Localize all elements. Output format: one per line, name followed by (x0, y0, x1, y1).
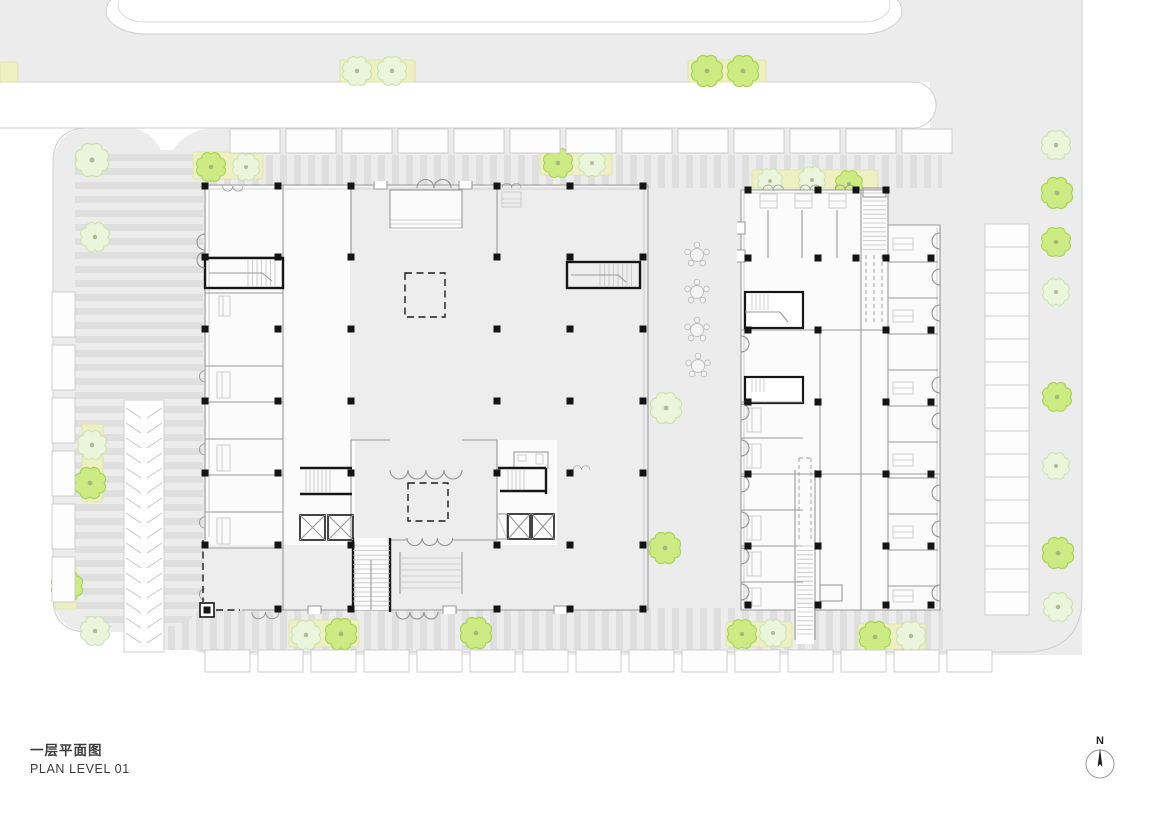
parking-stall-bottom-row (523, 650, 568, 672)
structural-column (745, 187, 752, 194)
annex-escape-stair-1 (745, 292, 803, 328)
parking-stall-right-column (985, 316, 1029, 339)
parking-stall-right-column (985, 546, 1029, 569)
structural-column (815, 187, 822, 194)
parking-stall-top-row (510, 129, 560, 153)
title-block: 一层平面图 PLAN LEVEL 01 (30, 743, 130, 776)
parking-stall-right-column (985, 408, 1029, 431)
parking-stall-right-column (985, 293, 1029, 316)
structural-column (567, 183, 574, 190)
structural-column (883, 327, 890, 334)
structural-column (745, 543, 752, 550)
parking-stall-top-row (342, 129, 392, 153)
structural-column (853, 255, 860, 262)
parking-stall-right-column (985, 569, 1029, 592)
structural-column (567, 254, 574, 261)
structural-column (640, 183, 647, 190)
structural-column (494, 542, 501, 549)
structural-column (567, 470, 574, 477)
structural-column (883, 471, 890, 478)
parking-stall-right-column (985, 339, 1029, 362)
structural-column (202, 398, 209, 405)
structural-column (745, 327, 752, 334)
structural-column (348, 183, 355, 190)
structural-column (853, 187, 860, 194)
parking-stall-top-row (230, 129, 280, 153)
parking-stall-left-column (52, 504, 75, 549)
structural-column (348, 326, 355, 333)
structural-column (815, 255, 822, 262)
parking-stall-left-column (52, 345, 75, 390)
structural-column (494, 326, 501, 333)
parking-stall-right-column (985, 454, 1029, 477)
plan-drawing: 一层平面图 PLAN LEVEL 01 N (0, 0, 1152, 815)
parking-stall-bottom-row (205, 650, 250, 672)
planting-strip (0, 62, 18, 82)
structural-column (567, 398, 574, 405)
floor-plan-sheet: 一层平面图 PLAN LEVEL 01 N (0, 0, 1152, 815)
structural-column (275, 326, 282, 333)
parking-stall-top-row (566, 129, 616, 153)
structural-column (202, 183, 209, 190)
structural-column (348, 606, 355, 613)
structural-column (494, 606, 501, 613)
parking-stall-right-column (985, 224, 1029, 247)
parking-stall-right-column (985, 385, 1029, 408)
parking-stall-left-column (52, 292, 75, 337)
structural-column (928, 327, 935, 334)
parking-stall-bottom-row (258, 650, 303, 672)
structural-column (494, 183, 501, 190)
structural-column (883, 187, 890, 194)
parking-stall-left-column (52, 451, 75, 496)
parking-stall-top-row (902, 129, 952, 153)
parking-stall-top-row (398, 129, 448, 153)
structural-column (815, 399, 822, 406)
structural-column (883, 602, 890, 609)
structural-column (275, 398, 282, 405)
structural-column (928, 399, 935, 406)
parking-stall-bottom-row (417, 650, 462, 672)
parking-stall-right-column (985, 500, 1029, 523)
parking-stall-bottom-row (788, 650, 833, 672)
structural-column (640, 542, 647, 549)
parking-stall-left-column (52, 398, 75, 443)
structural-column (275, 470, 282, 477)
parking-stall-bottom-row (947, 650, 992, 672)
structural-column (348, 542, 355, 549)
annex-building (737, 185, 940, 644)
parking-stall-left-column (52, 557, 75, 602)
parking-stall-bottom-row (894, 650, 939, 672)
parking-stall-right-column (985, 477, 1029, 500)
structural-column (883, 399, 890, 406)
north-label: N (1096, 735, 1104, 747)
neighbour-building-footprint (106, 0, 902, 34)
structural-column (745, 255, 752, 262)
annex-escape-stair-2 (745, 377, 803, 403)
parking-stall-bottom-row (629, 650, 674, 672)
structural-column (494, 398, 501, 405)
structural-column (202, 254, 209, 261)
structural-column (815, 543, 822, 550)
ramp-chevrons (126, 404, 162, 648)
structural-column (883, 255, 890, 262)
structural-column (202, 470, 209, 477)
main-building (197, 180, 648, 620)
parking-stall-right-column (985, 592, 1029, 615)
plan-title-zh: 一层平面图 (30, 743, 103, 758)
structural-column (745, 399, 752, 406)
parking-stall-bottom-row (364, 650, 409, 672)
parking-stall-right-column (985, 247, 1029, 270)
structural-column (928, 471, 935, 478)
structural-column (815, 471, 822, 478)
core-west-stair-treads (306, 470, 330, 492)
parking-stall-top-row (846, 129, 896, 153)
parking-stall-bottom-row (682, 650, 727, 672)
structural-column (815, 602, 822, 609)
structural-column (928, 602, 935, 609)
parking-stall-right-column (985, 523, 1029, 546)
parking-stall-top-row (678, 129, 728, 153)
structural-column (640, 326, 647, 333)
stripe-band-bottom (163, 608, 943, 650)
parking-stall-right-column (985, 362, 1029, 385)
north-arrow-needle (1098, 748, 1103, 767)
structural-column (815, 327, 822, 334)
structural-column (640, 606, 647, 613)
structural-column (202, 542, 209, 549)
structural-column (348, 470, 355, 477)
driveway-ramp (124, 400, 164, 652)
parking-stall-top-row (286, 129, 336, 153)
parking-stall-right-column (985, 270, 1029, 293)
parking-stall-bottom-row (470, 650, 515, 672)
structural-column (928, 255, 935, 262)
structural-column (928, 543, 935, 550)
structural-column (275, 254, 282, 261)
structural-column (567, 326, 574, 333)
plan-title-en: PLAN LEVEL 01 (30, 762, 130, 776)
structural-column (494, 470, 501, 477)
parking-stall-top-row (790, 129, 840, 153)
parking-stall-bottom-row (311, 650, 356, 672)
structural-column (275, 542, 282, 549)
structural-column (640, 398, 647, 405)
canopy-corner-column (200, 603, 214, 617)
parking-stall-bottom-row (735, 650, 780, 672)
structural-column (275, 183, 282, 190)
parking-stall-bottom-row (841, 650, 886, 672)
structural-column (640, 470, 647, 477)
structural-column (202, 326, 209, 333)
structural-column (275, 606, 282, 613)
north-arrow: N (1086, 735, 1114, 778)
parking-stall-top-row (622, 129, 672, 153)
parking-stall-bottom-row (576, 650, 621, 672)
structural-column (640, 254, 647, 261)
structural-column (348, 398, 355, 405)
structural-column (745, 602, 752, 609)
street-gap (0, 82, 936, 128)
parking-stall-top-row (734, 129, 784, 153)
parking-stall-right-column (985, 431, 1029, 454)
parking-stall-top-row (454, 129, 504, 153)
structural-column (745, 471, 752, 478)
structural-column (348, 254, 355, 261)
structural-column (567, 542, 574, 549)
structural-column (494, 254, 501, 261)
structural-column (883, 543, 890, 550)
structural-column (567, 606, 574, 613)
